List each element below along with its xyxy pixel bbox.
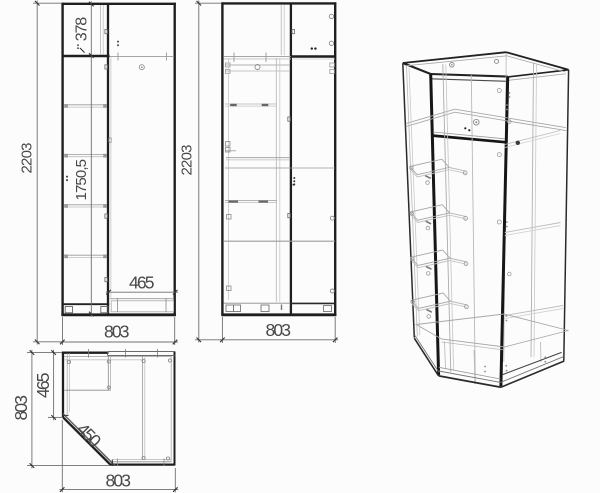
svg-text:803: 803 bbox=[266, 320, 292, 340]
svg-text:803: 803 bbox=[104, 322, 130, 342]
svg-text:1750,5: 1750,5 bbox=[73, 159, 90, 201]
svg-text:803: 803 bbox=[106, 470, 132, 490]
svg-text:2203: 2203 bbox=[19, 143, 36, 174]
svg-text:2203: 2203 bbox=[178, 145, 195, 176]
svg-text:803: 803 bbox=[11, 395, 31, 421]
svg-text:378: 378 bbox=[73, 17, 90, 42]
svg-text:465: 465 bbox=[129, 273, 155, 293]
svg-text:465: 465 bbox=[33, 373, 53, 399]
